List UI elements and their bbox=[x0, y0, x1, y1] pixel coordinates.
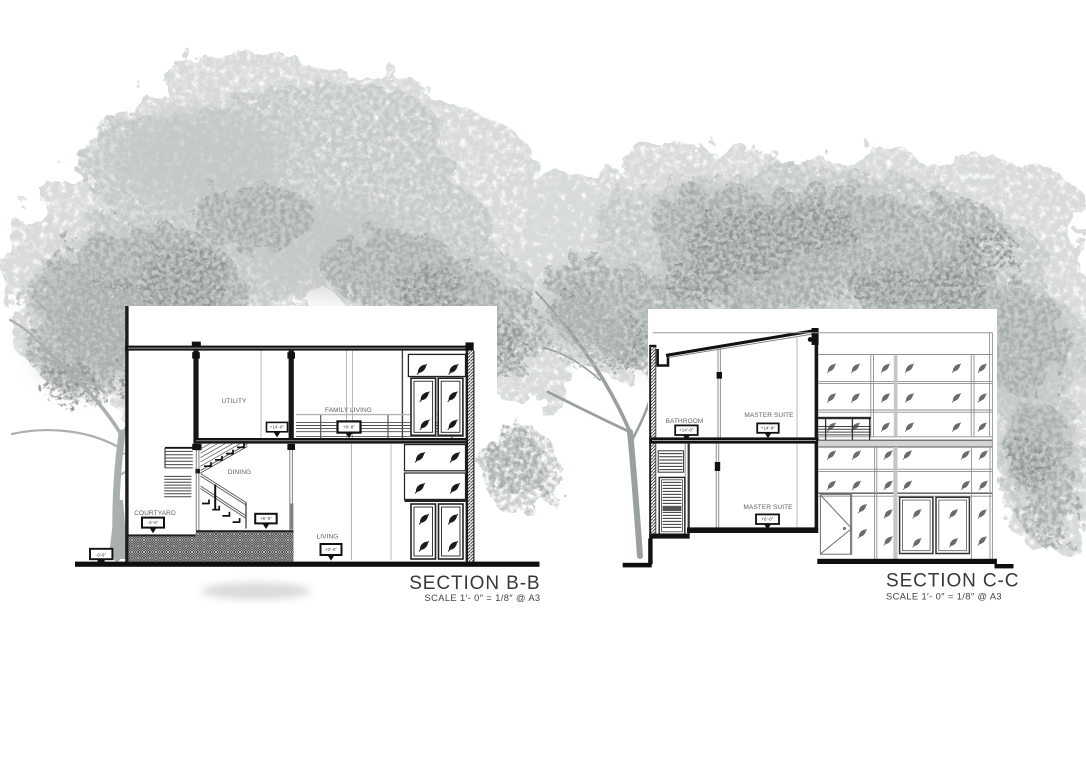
svg-text:MASTER SUITE: MASTER SUITE bbox=[743, 504, 793, 511]
svg-text:MASTER SUITE: MASTER SUITE bbox=[744, 412, 794, 419]
svg-text:+14′-0″: +14′-0″ bbox=[270, 425, 285, 430]
svg-text:UTILITY: UTILITY bbox=[222, 398, 247, 405]
svg-text:+6′-0″: +6′-0″ bbox=[260, 516, 272, 521]
svg-text:+14′-0″: +14′-0″ bbox=[679, 428, 694, 433]
svg-text:LIVING: LIVING bbox=[317, 534, 339, 541]
svg-text:+8′-8″: +8′-8″ bbox=[343, 425, 355, 430]
svg-text:SCALE 1′- 0″ = 1/8″ @ A3: SCALE 1′- 0″ = 1/8″ @ A3 bbox=[886, 592, 1002, 602]
svg-text:BATHROOM: BATHROOM bbox=[666, 418, 704, 425]
svg-text:+14′-8″: +14′-8″ bbox=[761, 426, 776, 431]
svg-text:+6′-0″: +6′-0″ bbox=[762, 517, 774, 522]
svg-text:-3′-6″: -3′-6″ bbox=[148, 520, 159, 525]
svg-text:-0′-6″: -0′-6″ bbox=[96, 552, 106, 557]
svg-text:SECTION C-C: SECTION C-C bbox=[886, 571, 1019, 592]
svg-text:DINING: DINING bbox=[228, 469, 251, 476]
svg-text:COURTYARD: COURTYARD bbox=[134, 510, 176, 517]
svg-text:FAMILY LIVING: FAMILY LIVING bbox=[325, 407, 372, 414]
svg-text:SCALE 1′- 0″ = 1/8″ @ A3: SCALE 1′- 0″ = 1/8″ @ A3 bbox=[425, 593, 541, 603]
svg-text:+0′-0″: +0′-0″ bbox=[325, 547, 337, 552]
svg-text:SECTION B-B: SECTION B-B bbox=[409, 573, 540, 594]
